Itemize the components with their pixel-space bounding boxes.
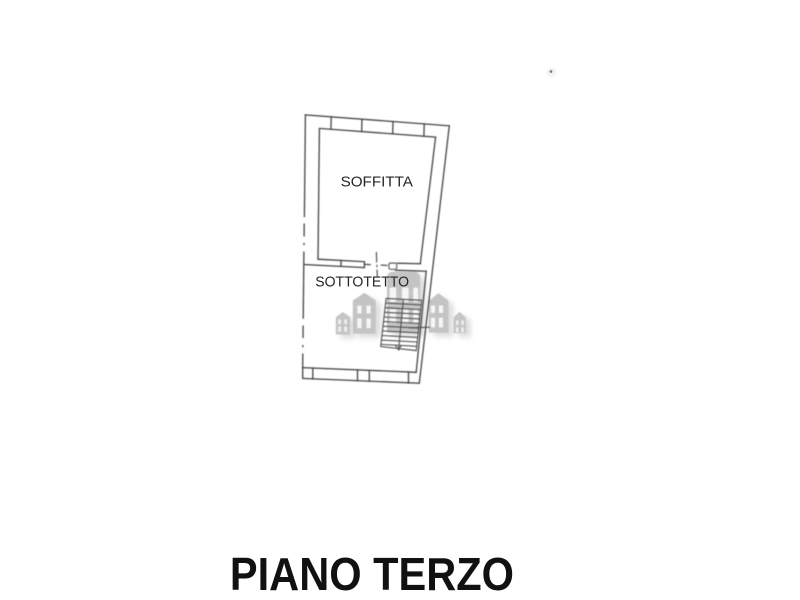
svg-text:SOTTOTETTO: SOTTOTETTO	[315, 274, 409, 291]
svg-text:SOFFITTA: SOFFITTA	[341, 173, 414, 190]
svg-text:PIANO TERZO: PIANO TERZO	[230, 549, 514, 600]
